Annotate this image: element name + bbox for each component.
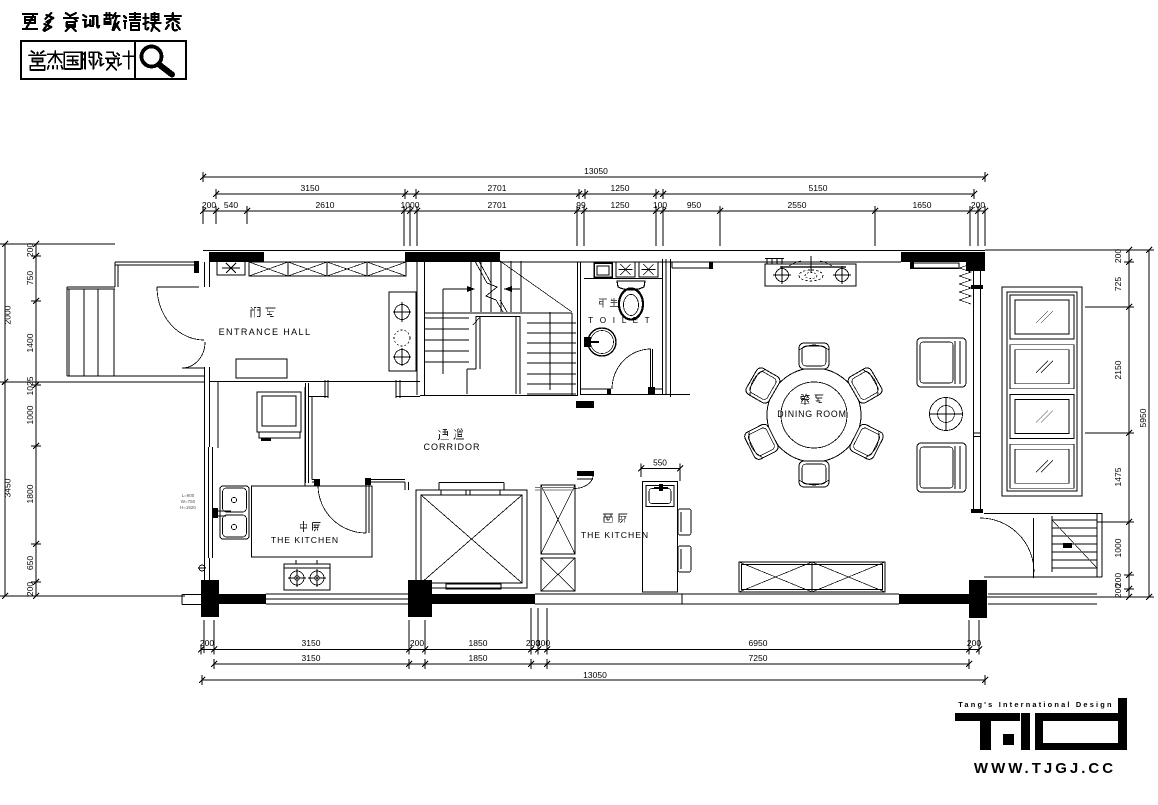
svg-text:200: 200 bbox=[202, 200, 216, 210]
svg-text:5950: 5950 bbox=[1138, 408, 1148, 427]
svg-text:1850: 1850 bbox=[469, 653, 488, 663]
svg-text:3150: 3150 bbox=[302, 638, 321, 648]
svg-text:Tang's International Design: Tang's International Design bbox=[958, 700, 1113, 709]
svg-text:1025: 1025 bbox=[25, 376, 35, 395]
svg-text:200: 200 bbox=[200, 638, 214, 648]
svg-text:550: 550 bbox=[653, 458, 667, 468]
svg-text:3150: 3150 bbox=[302, 653, 321, 663]
svg-text:200: 200 bbox=[971, 200, 985, 210]
svg-text:W=750: W=750 bbox=[181, 499, 196, 504]
svg-text:540: 540 bbox=[224, 200, 238, 210]
svg-text:13050: 13050 bbox=[584, 166, 608, 176]
svg-text:T O I L E T: T O I L E T bbox=[588, 316, 652, 325]
svg-text:THE KITCHEN: THE KITCHEN bbox=[271, 535, 339, 545]
svg-text:200: 200 bbox=[410, 638, 424, 648]
svg-text:ENTRANCE HALL: ENTRANCE HALL bbox=[219, 327, 312, 337]
svg-text:2701: 2701 bbox=[488, 200, 507, 210]
svg-text:THE KITCHEN: THE KITCHEN bbox=[581, 530, 649, 540]
svg-text:2150: 2150 bbox=[1113, 360, 1123, 379]
svg-text:L=900: L=900 bbox=[182, 493, 195, 498]
svg-text:200: 200 bbox=[25, 582, 35, 596]
svg-text:7250: 7250 bbox=[749, 653, 768, 663]
svg-text:3450: 3450 bbox=[3, 478, 13, 497]
svg-text:1850: 1850 bbox=[469, 638, 488, 648]
svg-text:2610: 2610 bbox=[316, 200, 335, 210]
svg-text:200: 200 bbox=[1113, 584, 1123, 598]
svg-text:1800: 1800 bbox=[25, 484, 35, 503]
svg-text:1000: 1000 bbox=[1113, 538, 1123, 557]
svg-text:725: 725 bbox=[1113, 277, 1123, 291]
svg-text:200: 200 bbox=[25, 243, 35, 257]
svg-text:99: 99 bbox=[576, 200, 586, 210]
svg-text:750: 750 bbox=[25, 271, 35, 285]
svg-text:3150: 3150 bbox=[301, 183, 320, 193]
svg-text:13050: 13050 bbox=[583, 670, 607, 680]
svg-text:CORRIDOR: CORRIDOR bbox=[424, 442, 481, 452]
svg-text:1475: 1475 bbox=[1113, 467, 1123, 486]
svg-text:H=1920: H=1920 bbox=[180, 505, 196, 510]
svg-text:2550: 2550 bbox=[788, 200, 807, 210]
svg-text:950: 950 bbox=[687, 200, 701, 210]
svg-text:6950: 6950 bbox=[749, 638, 768, 648]
svg-text:1250: 1250 bbox=[611, 183, 630, 193]
svg-text:WWW.TJGJ.CC: WWW.TJGJ.CC bbox=[974, 760, 1116, 777]
svg-text:200: 200 bbox=[1113, 249, 1123, 263]
svg-text:DINING ROOM: DINING ROOM bbox=[777, 409, 846, 419]
svg-text:1250: 1250 bbox=[611, 200, 630, 210]
svg-text:5150: 5150 bbox=[809, 183, 828, 193]
svg-text:1650: 1650 bbox=[913, 200, 932, 210]
svg-text:650: 650 bbox=[25, 556, 35, 570]
svg-text:2000: 2000 bbox=[3, 305, 13, 324]
svg-text:1000: 1000 bbox=[25, 405, 35, 424]
svg-text:1000: 1000 bbox=[401, 200, 420, 210]
svg-text:100: 100 bbox=[653, 200, 667, 210]
svg-text:2701: 2701 bbox=[488, 183, 507, 193]
svg-text:1400: 1400 bbox=[25, 333, 35, 352]
